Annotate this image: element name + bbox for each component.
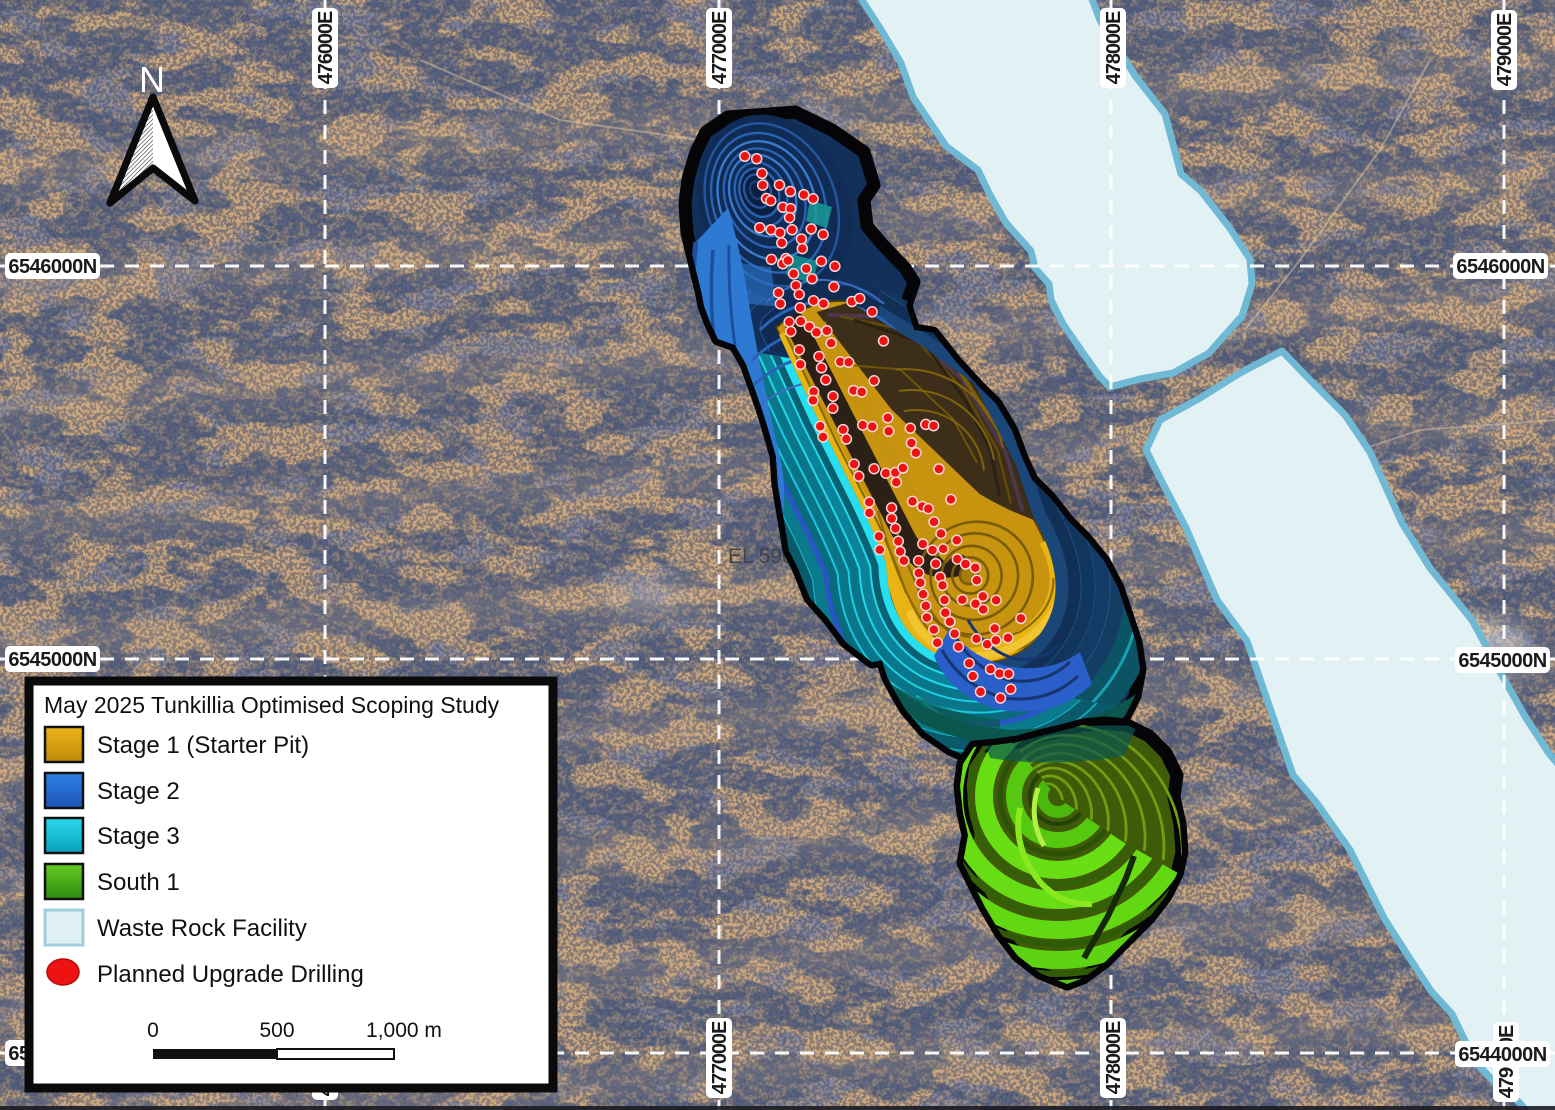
- svg-text:Stage 2: Stage 2: [97, 778, 180, 805]
- svg-text:500: 500: [259, 1019, 294, 1042]
- svg-text:6545000N: 6545000N: [8, 649, 96, 671]
- svg-text:0: 0: [147, 1019, 159, 1042]
- svg-text:Planned Upgrade Drilling: Planned Upgrade Drilling: [97, 961, 364, 988]
- svg-text:Waste Rock Facility: Waste Rock Facility: [97, 915, 307, 942]
- svg-text:478000E: 478000E: [1103, 11, 1125, 84]
- svg-text:6546000N: 6546000N: [8, 256, 96, 278]
- svg-text:477000E: 477000E: [709, 11, 731, 84]
- svg-text:1,000 m: 1,000 m: [366, 1019, 442, 1042]
- svg-text:May 2025 Tunkillia Optimised S: May 2025 Tunkillia Optimised Scoping Stu…: [44, 692, 500, 718]
- svg-text:477000E: 477000E: [709, 1021, 731, 1094]
- svg-text:6546000N: 6546000N: [1456, 256, 1544, 278]
- svg-text:6545000N: 6545000N: [1458, 650, 1546, 672]
- svg-text:Stage 1 (Starter Pit): Stage 1 (Starter Pit): [97, 732, 309, 759]
- svg-text:Stage 3: Stage 3: [97, 823, 180, 850]
- svg-text:478000E: 478000E: [1103, 1021, 1125, 1094]
- svg-text:6544000N: 6544000N: [1458, 1044, 1546, 1066]
- svg-text:476000E: 476000E: [315, 11, 337, 84]
- svg-text:479000E: 479000E: [1494, 13, 1516, 86]
- svg-text:South 1: South 1: [97, 869, 180, 896]
